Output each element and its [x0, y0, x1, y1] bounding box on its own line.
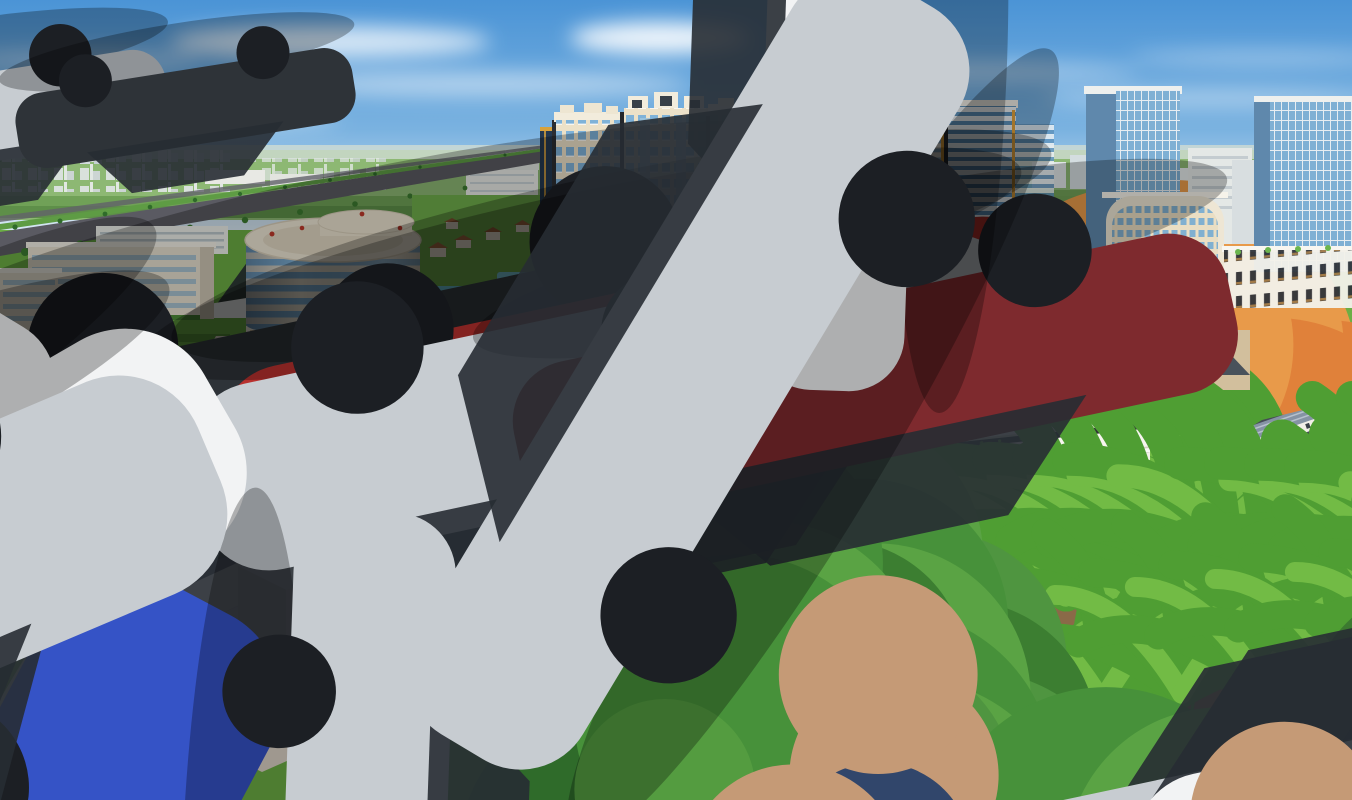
render-canvas — [0, 0, 1352, 800]
aerial-render — [0, 0, 1352, 800]
